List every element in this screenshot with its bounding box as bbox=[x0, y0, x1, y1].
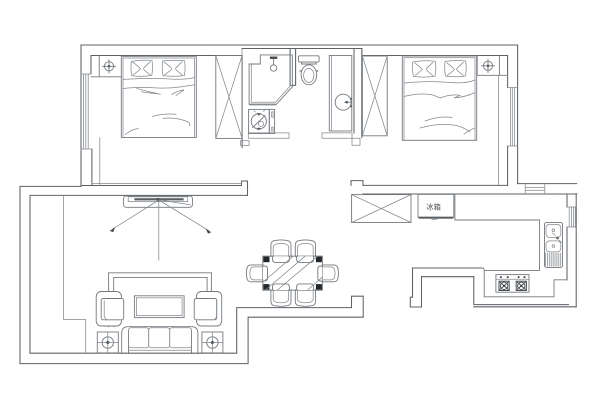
svg-text:冰箱: 冰箱 bbox=[426, 202, 440, 211]
